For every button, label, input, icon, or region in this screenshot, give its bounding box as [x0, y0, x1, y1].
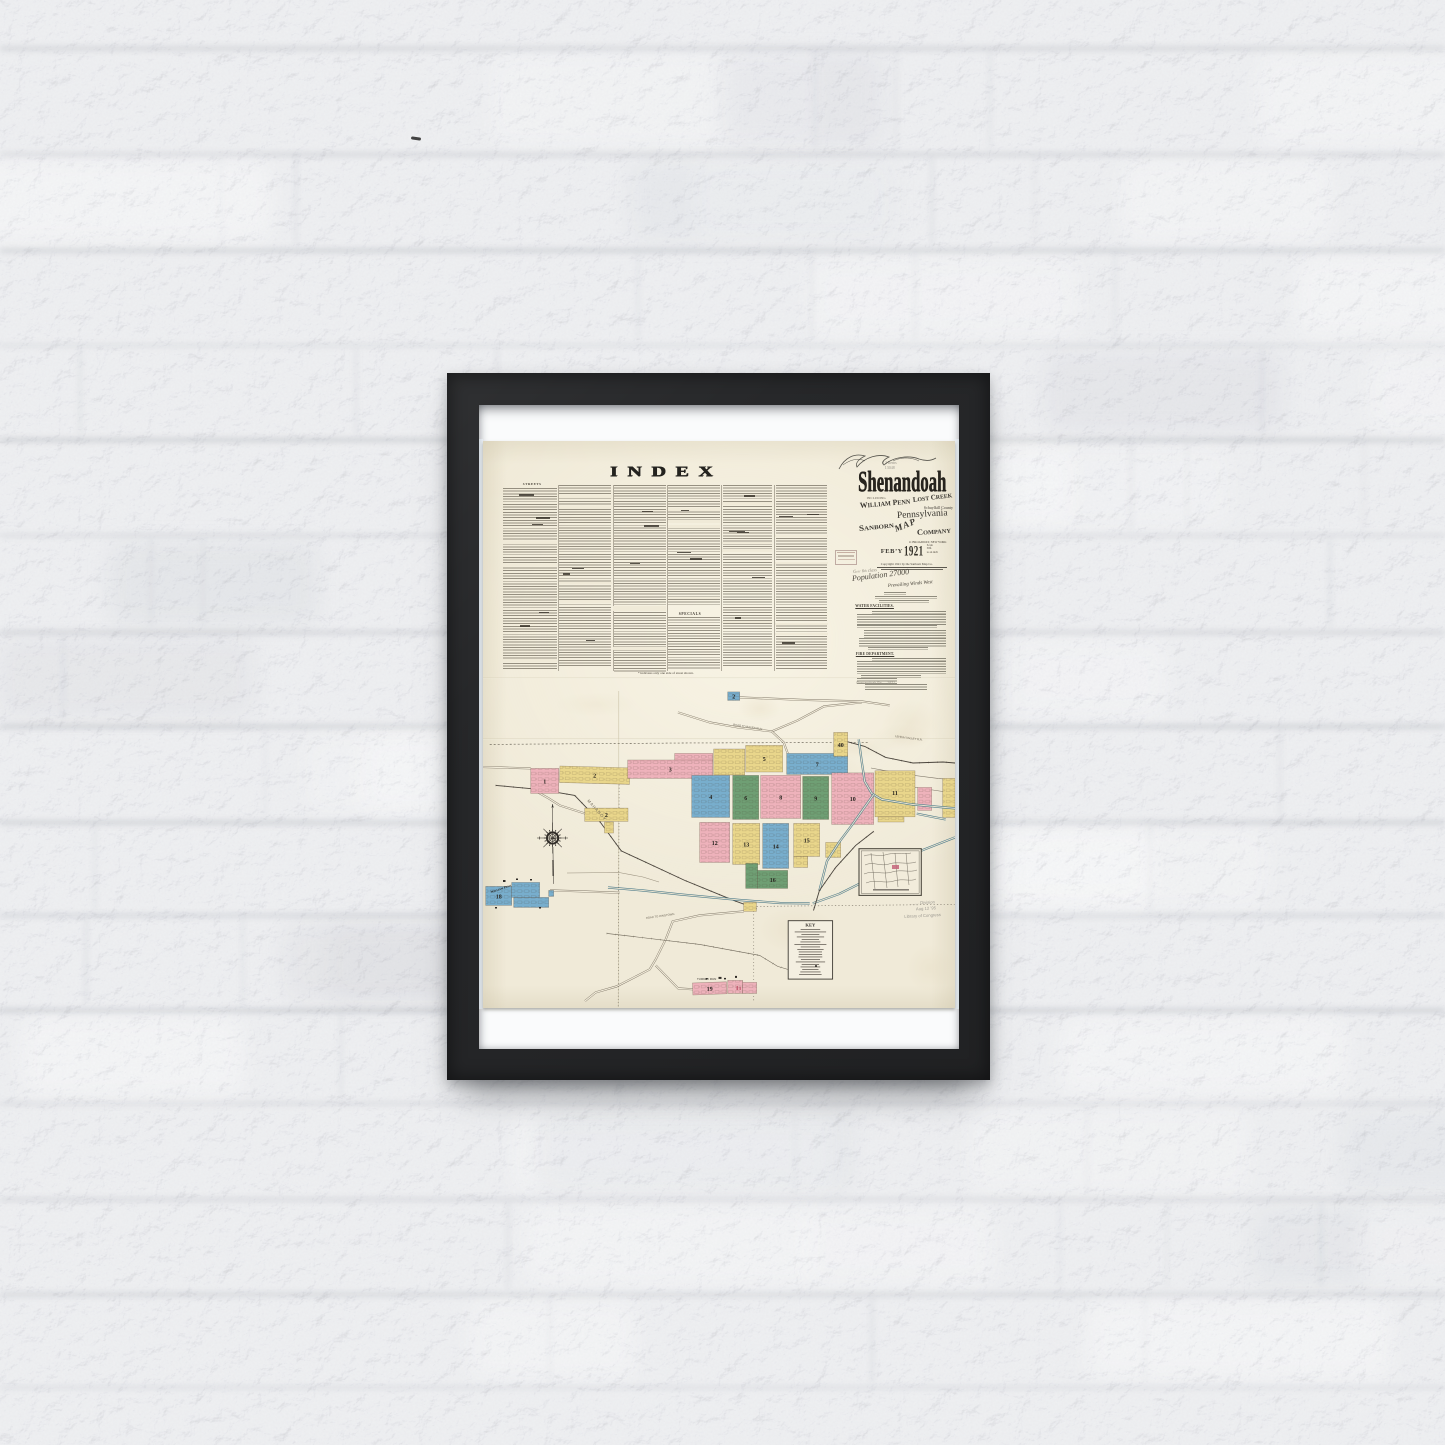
svg-text:10: 10 — [850, 797, 856, 803]
svg-text:13: 13 — [743, 842, 749, 848]
svg-text:16: 16 — [770, 878, 776, 884]
svg-text:ROAD TO RINGTOWN: ROAD TO RINGTOWN — [645, 912, 674, 920]
svg-text:11: 11 — [892, 791, 898, 797]
svg-text:3: 3 — [668, 768, 671, 774]
svg-text:18: 18 — [496, 894, 502, 900]
svg-text:7: 7 — [815, 762, 818, 768]
svg-text:40: 40 — [838, 743, 844, 749]
svg-text:TURKEY RUN: TURKEY RUN — [697, 977, 716, 981]
svg-text:15: 15 — [804, 838, 810, 844]
svg-text:19: 19 — [706, 987, 712, 993]
svg-text:1: 1 — [543, 779, 546, 785]
svg-text:4: 4 — [709, 795, 712, 801]
svg-text:5: 5 — [762, 757, 765, 763]
svg-text:Library of Congress: Library of Congress — [904, 912, 941, 919]
svg-text:ROAD TO RAVEN RUN: ROAD TO RAVEN RUN — [733, 723, 763, 732]
svg-text:6: 6 — [744, 796, 747, 802]
svg-text:14: 14 — [773, 844, 779, 850]
svg-text:Shenandoah Pa — 1921: Shenandoah Pa — 1921 — [856, 681, 895, 685]
svg-text:Aug 12 ʼ95: Aug 12 ʼ95 — [916, 905, 937, 911]
svg-text:LEHIGH VALLEY R.R.: LEHIGH VALLEY R.R. — [895, 734, 923, 742]
svg-text:2: 2 — [593, 774, 596, 780]
svg-text:KEY: KEY — [805, 923, 816, 928]
svg-text:9: 9 — [814, 796, 817, 802]
svg-text:8: 8 — [779, 795, 782, 801]
svg-text:12: 12 — [712, 841, 718, 847]
svg-text:2: 2 — [732, 695, 735, 701]
